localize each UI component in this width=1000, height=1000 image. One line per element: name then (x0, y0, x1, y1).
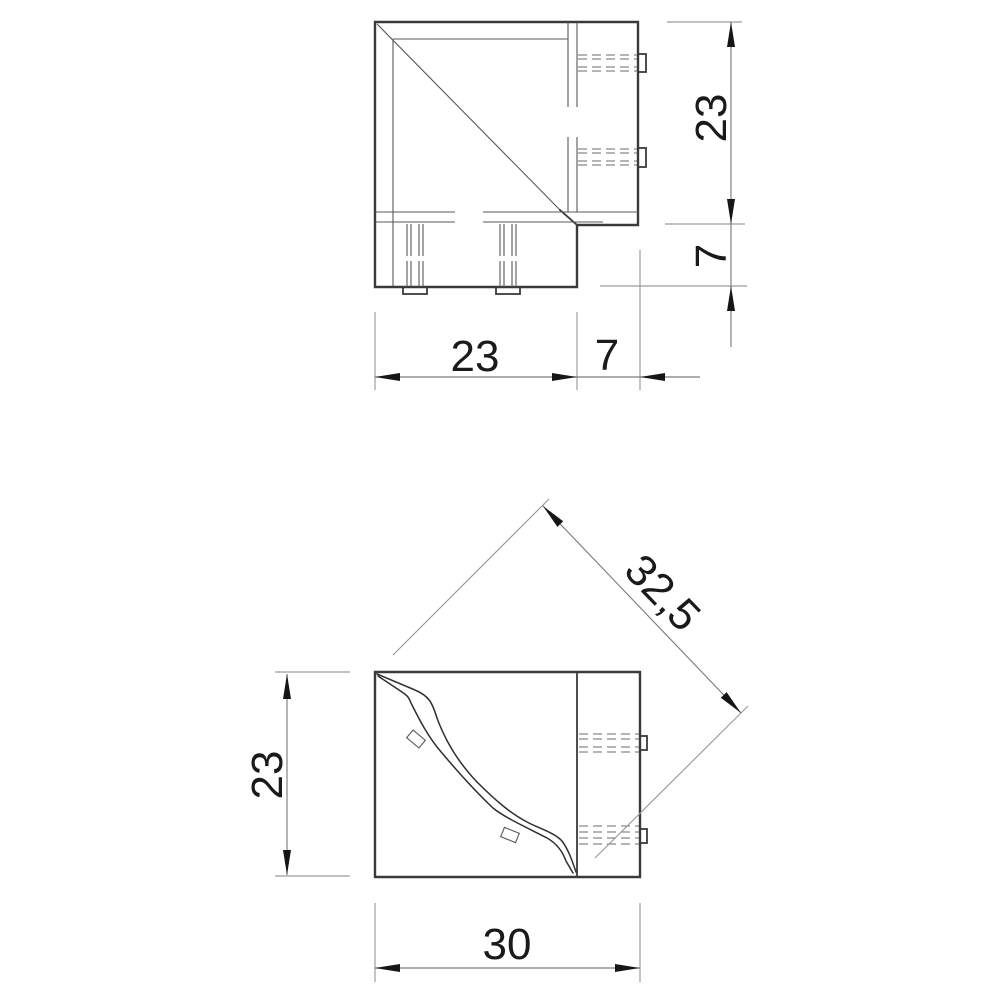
top-view-dimensions: 23 7 23 7 (375, 22, 747, 390)
front-view: 23 30 32,5 (243, 499, 748, 982)
dim-label-front-diagonal: 32,5 (615, 545, 710, 641)
extension-lines-diagonal (393, 499, 748, 858)
top-view: 23 7 23 7 (375, 22, 747, 390)
drawing-canvas: 23 7 23 7 (0, 0, 1000, 1000)
bottom-tab-detail-left (407, 224, 423, 287)
front-view-dimensions: 23 30 32,5 (243, 499, 748, 982)
dim-label-top-height-main: 23 (687, 94, 736, 143)
technical-drawing: 23 7 23 7 (0, 0, 1000, 1000)
dim-label-top-width-main: 23 (451, 332, 500, 381)
right-peg-upper-hidden (578, 55, 637, 71)
corner-face-curve-inner (378, 676, 573, 873)
dim-label-top-height-tab: 7 (687, 244, 736, 268)
dim-label-top-width-tab: 7 (595, 331, 619, 380)
dim-label-front-width: 30 (483, 920, 532, 969)
right-peg-lower-hidden (578, 149, 637, 165)
dim-label-front-height: 23 (243, 751, 292, 800)
front-peg-upper-hidden (579, 734, 639, 752)
front-peg-lower-hidden (579, 826, 639, 844)
part-outline-front (375, 672, 640, 877)
corner-face-curve-outer (377, 674, 576, 872)
clip-slot-upper (407, 730, 426, 748)
bottom-tab-detail-right (500, 224, 516, 287)
clip-slot-lower (501, 827, 520, 842)
miter-diagonal (377, 24, 560, 210)
top-view-part (375, 22, 646, 294)
dimension-line-diagonal (543, 506, 741, 713)
